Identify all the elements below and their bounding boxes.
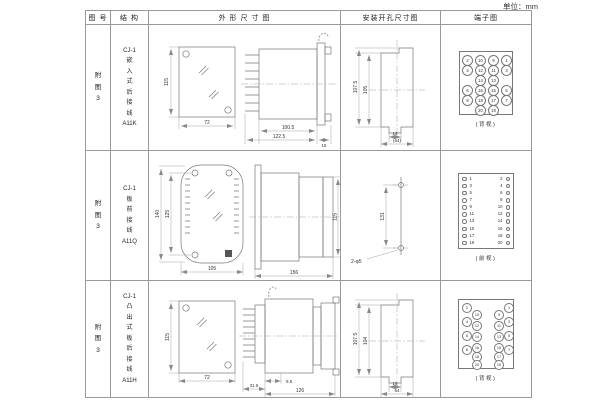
- mounting-cell-row2: 131 2-φ5: [341, 151, 441, 281]
- terminal-5: 5: [470, 191, 472, 195]
- terminal-1: 1: [504, 303, 514, 313]
- terminal-19: 19: [470, 241, 475, 245]
- mounting-cell-row1: 107.5 105 16 (64): [341, 25, 441, 151]
- dim-16: 16: [392, 381, 398, 386]
- dim-107-5: 107.5: [353, 81, 359, 94]
- terminal-16: 16: [498, 227, 503, 231]
- mounting-cell-row3: 107.5 104 16 64: [341, 281, 441, 397]
- dim-140: 140: [155, 210, 161, 219]
- fig-no-row2: 附 图 3: [86, 151, 111, 281]
- terminal-1: 1: [470, 177, 472, 181]
- dim-104: 104: [363, 337, 369, 346]
- terminal-10: 10: [472, 310, 482, 320]
- outline-cell-row3: 115 72 9.5 31.5 126: [149, 281, 341, 397]
- terminal-17: 17: [470, 234, 475, 238]
- terminal-hole-icon: [506, 184, 511, 189]
- terminal-hole-icon: [462, 198, 467, 203]
- dim-9-5: 9.5: [286, 379, 293, 384]
- view-label-rear: (背视): [476, 120, 497, 128]
- dim-125: 125: [165, 210, 171, 219]
- terminal-cell-row1: 2 10 9 1 4 12 11 3 14 13 6 16 15 5 8 18 …: [441, 25, 531, 151]
- terminal-8: 8: [462, 95, 473, 106]
- terminal-2: 2: [462, 303, 472, 313]
- terminal-14: 14: [472, 332, 482, 342]
- dim-16: 16: [392, 131, 398, 136]
- terminal-hole-icon: [462, 241, 467, 246]
- terminal-7: 7: [470, 198, 472, 202]
- fig-no-row1: 附 图 3: [86, 25, 111, 151]
- dim-64: (64): [393, 138, 402, 143]
- terminal-hole-icon: [506, 191, 511, 196]
- terminal-hole-icon: [462, 227, 467, 232]
- hole-spec-label: 2-φ5: [351, 259, 362, 265]
- terminal-2: 2: [500, 177, 502, 181]
- view-label-front: (前视): [476, 254, 497, 262]
- terminal-hole-icon: [462, 191, 467, 196]
- outline-drawing-a11h: 115 72 9.5 31.5 126: [149, 281, 341, 397]
- mounting-drawing-a11k: 107.5 105 16 (64): [341, 25, 441, 151]
- terminal-hole-icon: [506, 177, 511, 182]
- terminal-row: 12: [459, 177, 513, 182]
- terminal-9: 9: [494, 310, 504, 320]
- terminal-3: 3: [504, 317, 514, 327]
- outline-drawing-a11q: 140 125 105 156 115: [149, 151, 341, 281]
- header-fig-no: 图 号: [86, 11, 111, 25]
- terminal-9: 9: [470, 205, 472, 209]
- terminal-4: 4: [462, 317, 472, 327]
- structure-row3: CJ-1 凸 出 式 板 后 接 线 A11H: [111, 281, 149, 397]
- dim-115: 115: [165, 333, 171, 341]
- manual-page: 单位：mm 图 号 结 构 外 形 尺 寸 图 安装开孔尺寸图 端子图 附 图 …: [0, 0, 600, 400]
- dim-105w: 105: [208, 266, 217, 272]
- terminal-7: 7: [501, 95, 512, 106]
- terminal-row: 1314: [459, 219, 513, 224]
- terminal-row: 1516: [459, 227, 513, 232]
- terminal-row: 1920: [459, 241, 513, 246]
- view-label-rear: (背视): [476, 374, 497, 382]
- fig-no-row3: 附 图 3: [86, 281, 111, 397]
- terminal-cell-row3: 2 4 6 8 10 12 14 16 18 20 9 11 13 15 17 …: [441, 281, 531, 397]
- terminal-15: 15: [470, 227, 475, 231]
- mounting-drawing-a11h: 107.5 104 16 64: [341, 281, 441, 397]
- dim-31-5: 31.5: [250, 383, 259, 388]
- dim-156: 156: [290, 270, 299, 276]
- terminal-row: 1718: [459, 234, 513, 239]
- dim-131: 131: [380, 212, 386, 221]
- terminal-hole-icon: [462, 219, 467, 224]
- terminal-19: 19: [494, 360, 504, 370]
- dim-100-5: 100.5: [282, 125, 295, 131]
- terminal-row: 1112: [459, 212, 513, 217]
- terminal-5: 5: [504, 331, 514, 341]
- outline-cell-row2: 140 125 105 156 115: [149, 151, 341, 281]
- terminal-panel-rear-a11k: 2 10 9 1 4 12 11 3 14 13 6 16 15 5 8 18 …: [459, 51, 513, 115]
- terminal-hole-icon: [506, 234, 511, 239]
- header-structure: 结 构: [111, 11, 149, 25]
- terminal-20: 20: [472, 360, 482, 370]
- terminal-hole-icon: [462, 177, 467, 182]
- terminal-hole-icon: [506, 205, 511, 210]
- terminal-hole-icon: [506, 219, 511, 224]
- terminal-14: 14: [498, 219, 503, 223]
- terminal-4: 4: [462, 65, 473, 76]
- dim-122-5: 122.5: [273, 134, 286, 140]
- terminal-20: 20: [475, 105, 486, 116]
- terminal-panel-front-a11q: 12 34 56 78 910 1112 1314 1516 1718 1920: [458, 173, 514, 249]
- header-outline: 外 形 尺 寸 图: [149, 11, 341, 25]
- structure-row1: CJ-1 嵌 入 式 后 接 线 A11K: [111, 25, 149, 151]
- terminal-10: 10: [498, 205, 503, 209]
- terminal-row: 56: [459, 191, 513, 196]
- dim-115-side: 115: [333, 213, 339, 221]
- terminal-7: 7: [504, 345, 514, 355]
- mounting-drawing-a11q: 131 2-φ5: [341, 151, 441, 281]
- terminal-3: 3: [501, 65, 512, 76]
- terminal-panel-rear-a11h: 2 4 6 8 10 12 14 16 18 20 9 11 13 15 17 …: [458, 299, 514, 369]
- terminal-hole-icon: [462, 184, 467, 189]
- dim-115: 115: [164, 78, 170, 86]
- terminal-hole-icon: [506, 198, 511, 203]
- dim-15: 15: [321, 143, 327, 148]
- header-mounting: 安装开孔尺寸图: [341, 11, 441, 25]
- terminal-19: 19: [488, 105, 499, 116]
- terminal-11: 11: [470, 212, 474, 216]
- terminal-hole-icon: [506, 241, 511, 246]
- terminal-hole-icon: [506, 227, 511, 232]
- terminal-13: 13: [470, 219, 475, 223]
- terminal-row: 78: [459, 198, 513, 203]
- terminal-hole-icon: [462, 234, 467, 239]
- terminal-3: 3: [470, 184, 472, 188]
- header-terminal: 端子图: [441, 11, 531, 25]
- dim-72: 72: [204, 375, 210, 381]
- outline-cell-row1: 115 72 100.5 122.5 15: [149, 25, 341, 151]
- dim-107-5: 107.5: [353, 333, 359, 346]
- terminal-8: 8: [462, 345, 472, 355]
- terminal-11: 11: [494, 321, 504, 331]
- dim-72: 72: [204, 120, 210, 126]
- terminal-12: 12: [498, 212, 503, 216]
- terminal-row: 910: [459, 205, 513, 210]
- terminal-13: 13: [494, 332, 504, 342]
- terminal-8: 8: [500, 198, 502, 202]
- terminal-cell-row2: 12 34 56 78 910 1112 1314 1516 1718 1920…: [441, 151, 531, 281]
- terminal-hole-icon: [462, 205, 467, 210]
- outline-drawing-a11k: 115 72 100.5 122.5 15: [149, 25, 341, 151]
- dim-126: 126: [296, 388, 305, 394]
- terminal-row: 34: [459, 184, 513, 189]
- structure-row2: CJ-1 板 前 接 线 A11Q: [111, 151, 149, 281]
- terminal-20: 20: [498, 241, 503, 245]
- terminal-4: 4: [500, 184, 502, 188]
- dim-64: 64: [394, 388, 400, 393]
- terminal-hole-icon: [506, 212, 511, 217]
- terminal-hole-icon: [462, 212, 467, 217]
- dim-105: 105: [363, 86, 369, 95]
- terminal-6: 6: [462, 331, 472, 341]
- terminal-12: 12: [472, 321, 482, 331]
- dimension-table: 图 号 结 构 外 形 尺 寸 图 安装开孔尺寸图 端子图 附 图 3 CJ-1…: [85, 10, 532, 398]
- terminal-18: 18: [498, 234, 503, 238]
- terminal-6: 6: [500, 191, 502, 195]
